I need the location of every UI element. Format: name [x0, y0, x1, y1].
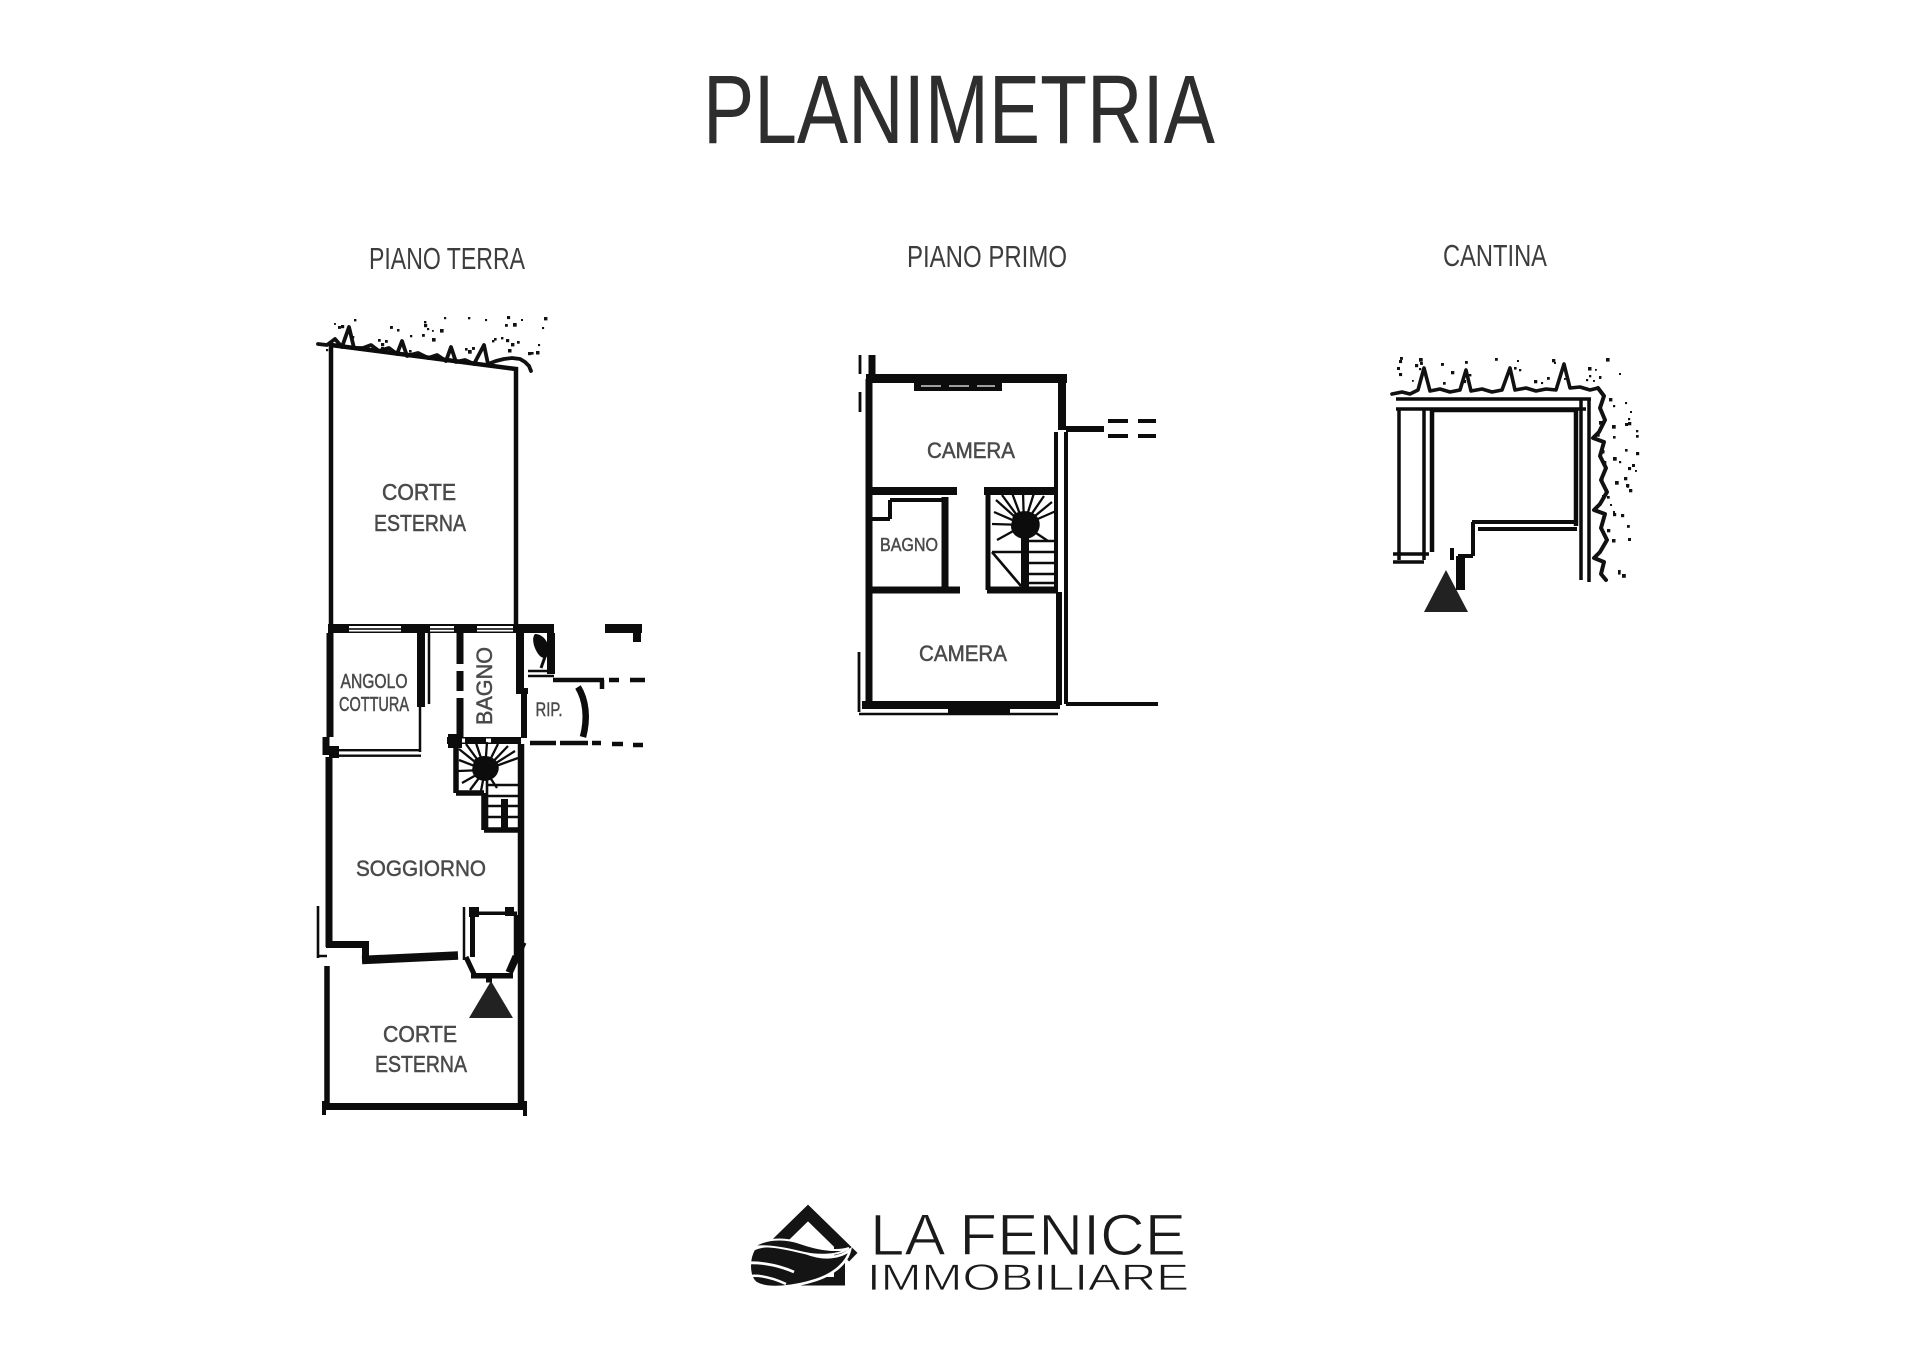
svg-text:ANGOLO: ANGOLO	[341, 671, 408, 693]
svg-text:SOGGIORNO: SOGGIORNO	[356, 856, 486, 881]
svg-text:PLANIMETRIA: PLANIMETRIA	[703, 55, 1215, 164]
svg-text:BAGNO: BAGNO	[880, 535, 938, 555]
svg-text:RIP.: RIP.	[536, 700, 563, 721]
svg-text:COTTURA: COTTURA	[339, 694, 409, 716]
svg-text:ESTERNA: ESTERNA	[374, 510, 467, 536]
svg-text:CORTE: CORTE	[383, 1021, 457, 1047]
svg-text:BAGNO: BAGNO	[472, 647, 497, 725]
svg-text:IMMOBILIARE: IMMOBILIARE	[867, 1257, 1189, 1298]
svg-text:CAMERA: CAMERA	[919, 641, 1007, 666]
svg-text:CANTINA: CANTINA	[1443, 238, 1547, 273]
svg-text:ESTERNA: ESTERNA	[375, 1051, 468, 1077]
svg-text:CAMERA: CAMERA	[927, 438, 1015, 463]
svg-text:PIANO TERRA: PIANO TERRA	[369, 241, 525, 276]
svg-text:PIANO PRIMO: PIANO PRIMO	[907, 239, 1067, 274]
svg-text:CORTE: CORTE	[382, 479, 456, 505]
